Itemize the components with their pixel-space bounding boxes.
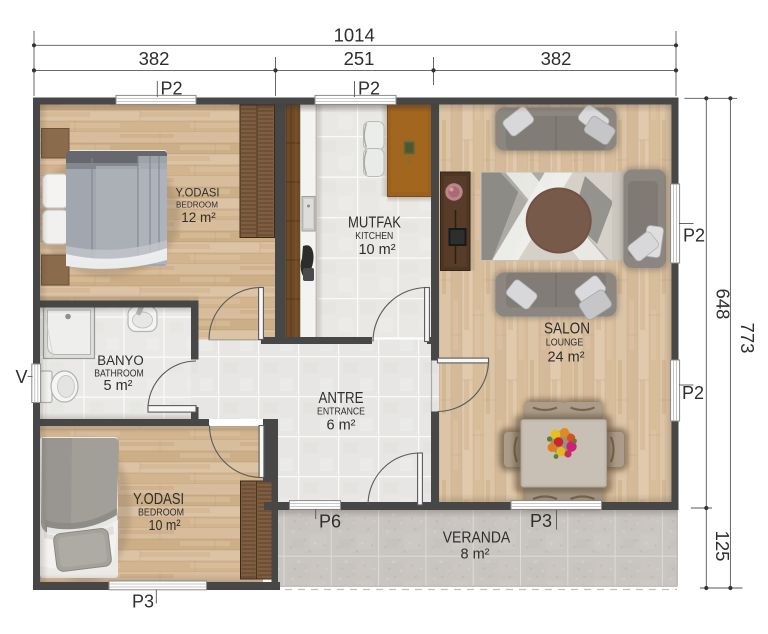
svg-text:Y.ODASI: Y.ODASI (176, 188, 220, 200)
svg-text:KITCHEN: KITCHEN (355, 230, 393, 242)
svg-text:382: 382 (541, 48, 572, 69)
svg-text:1014: 1014 (334, 25, 375, 46)
svg-text:8 m²: 8 m² (461, 547, 490, 563)
svg-text:P2: P2 (161, 79, 183, 99)
svg-text:125: 125 (712, 531, 733, 562)
svg-text:5 m²: 5 m² (104, 378, 133, 394)
svg-text:P6: P6 (319, 512, 341, 532)
svg-text:12 m²: 12 m² (181, 210, 216, 225)
svg-text:648: 648 (713, 289, 734, 320)
svg-text:Y.ODASI: Y.ODASI (133, 491, 184, 508)
svg-text:10 m²: 10 m² (358, 242, 395, 258)
svg-text:SALON: SALON (544, 321, 590, 338)
svg-text:ENTRANCE: ENTRANCE (317, 406, 365, 418)
svg-text:P3: P3 (530, 511, 552, 531)
svg-text:VERANDA: VERANDA (443, 530, 511, 547)
svg-text:V: V (16, 367, 28, 387)
svg-text:773: 773 (737, 323, 758, 354)
svg-text:10 m²: 10 m² (149, 517, 181, 534)
svg-text:P2: P2 (683, 226, 705, 246)
svg-text:251: 251 (344, 48, 375, 69)
svg-text:BEDROOM: BEDROOM (176, 200, 218, 210)
svg-text:P2: P2 (358, 79, 380, 99)
svg-text:24 m²: 24 m² (547, 350, 584, 366)
svg-text:6 m²: 6 m² (327, 418, 356, 434)
svg-text:P2: P2 (682, 383, 704, 403)
svg-text:ANTRE: ANTRE (319, 390, 364, 407)
svg-text:P3: P3 (132, 591, 154, 611)
svg-text:BANYO: BANYO (97, 353, 144, 368)
svg-text:382: 382 (139, 48, 170, 69)
svg-text:MUTFAK: MUTFAK (348, 215, 402, 232)
svg-text:LOUNGE: LOUNGE (546, 337, 584, 349)
